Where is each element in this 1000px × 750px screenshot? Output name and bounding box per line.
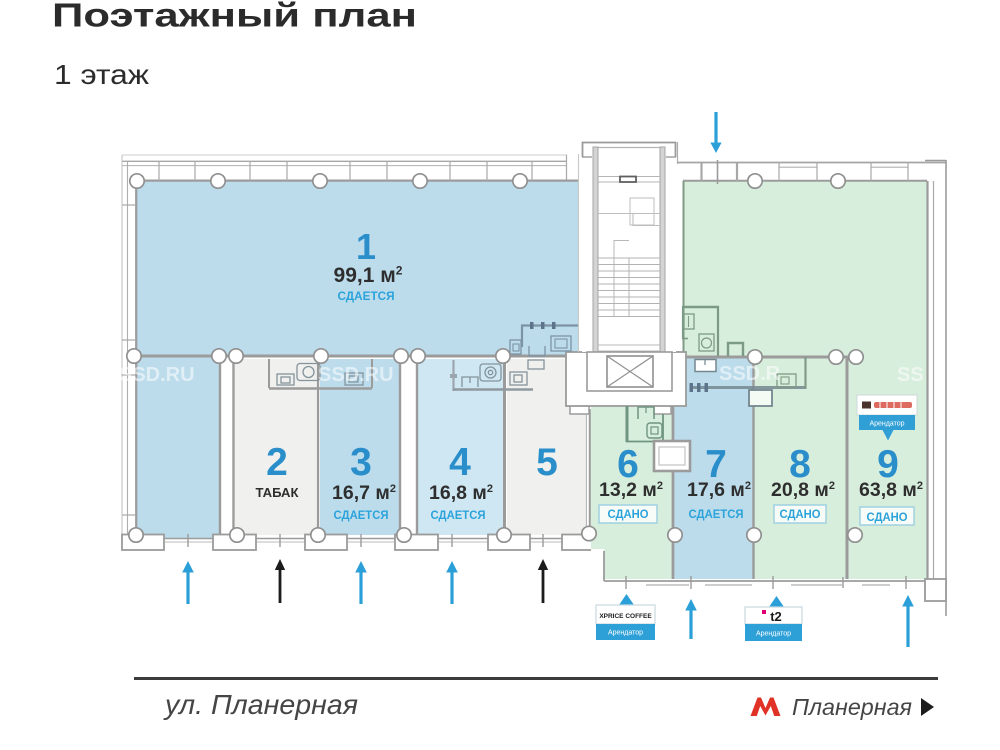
- svg-text:СДАЕТСЯ: СДАЕТСЯ: [431, 508, 486, 522]
- svg-text:SSD.RU: SSD.RU: [119, 364, 195, 386]
- svg-text:5: 5: [536, 441, 558, 484]
- svg-text:XPRICE COFFEE: XPRICE COFFEE: [599, 613, 652, 620]
- svg-text:t2: t2: [770, 609, 782, 624]
- svg-text:99,1 м2: 99,1 м2: [334, 264, 403, 288]
- svg-text:ул. Планерная: ул. Планерная: [163, 689, 358, 720]
- svg-text:СДАЕТСЯ: СДАЕТСЯ: [338, 289, 395, 303]
- svg-text:SSD.RU: SSD.RU: [318, 364, 394, 386]
- svg-text:4: 4: [449, 441, 471, 484]
- svg-text:Планерная: Планерная: [792, 694, 912, 720]
- svg-text:13,2 м2: 13,2 м2: [599, 479, 663, 501]
- svg-text:СДАНО: СДАНО: [780, 507, 821, 521]
- svg-text:Арендатор: Арендатор: [756, 631, 791, 638]
- svg-text:1 этаж: 1 этаж: [54, 59, 149, 90]
- svg-text:20,8 м2: 20,8 м2: [771, 479, 835, 501]
- svg-text:SS: SS: [897, 364, 924, 386]
- svg-text:Арендатор: Арендатор: [608, 630, 643, 637]
- svg-text:16,8 м2: 16,8 м2: [429, 482, 493, 504]
- svg-text:63,8 м2: 63,8 м2: [859, 479, 923, 501]
- svg-text:Арендатор: Арендатор: [869, 421, 904, 428]
- svg-text:1: 1: [356, 226, 376, 267]
- svg-text:СДАЕТСЯ: СДАЕТСЯ: [334, 508, 389, 522]
- svg-text:СДАНО: СДАНО: [867, 510, 908, 524]
- svg-text:СДАЕТСЯ: СДАЕТСЯ: [689, 507, 744, 521]
- svg-text:ТАБАК: ТАБАК: [256, 485, 299, 500]
- svg-text:SSD.R: SSD.R: [719, 363, 781, 385]
- svg-text:3: 3: [350, 441, 372, 484]
- svg-text:2: 2: [266, 441, 288, 484]
- svg-text:16,7 м2: 16,7 м2: [332, 482, 396, 504]
- svg-text:17,6 м2: 17,6 м2: [687, 479, 751, 501]
- svg-text:Поэтажный план: Поэтажный план: [52, 0, 417, 34]
- svg-text:СДАНО: СДАНО: [608, 507, 649, 521]
